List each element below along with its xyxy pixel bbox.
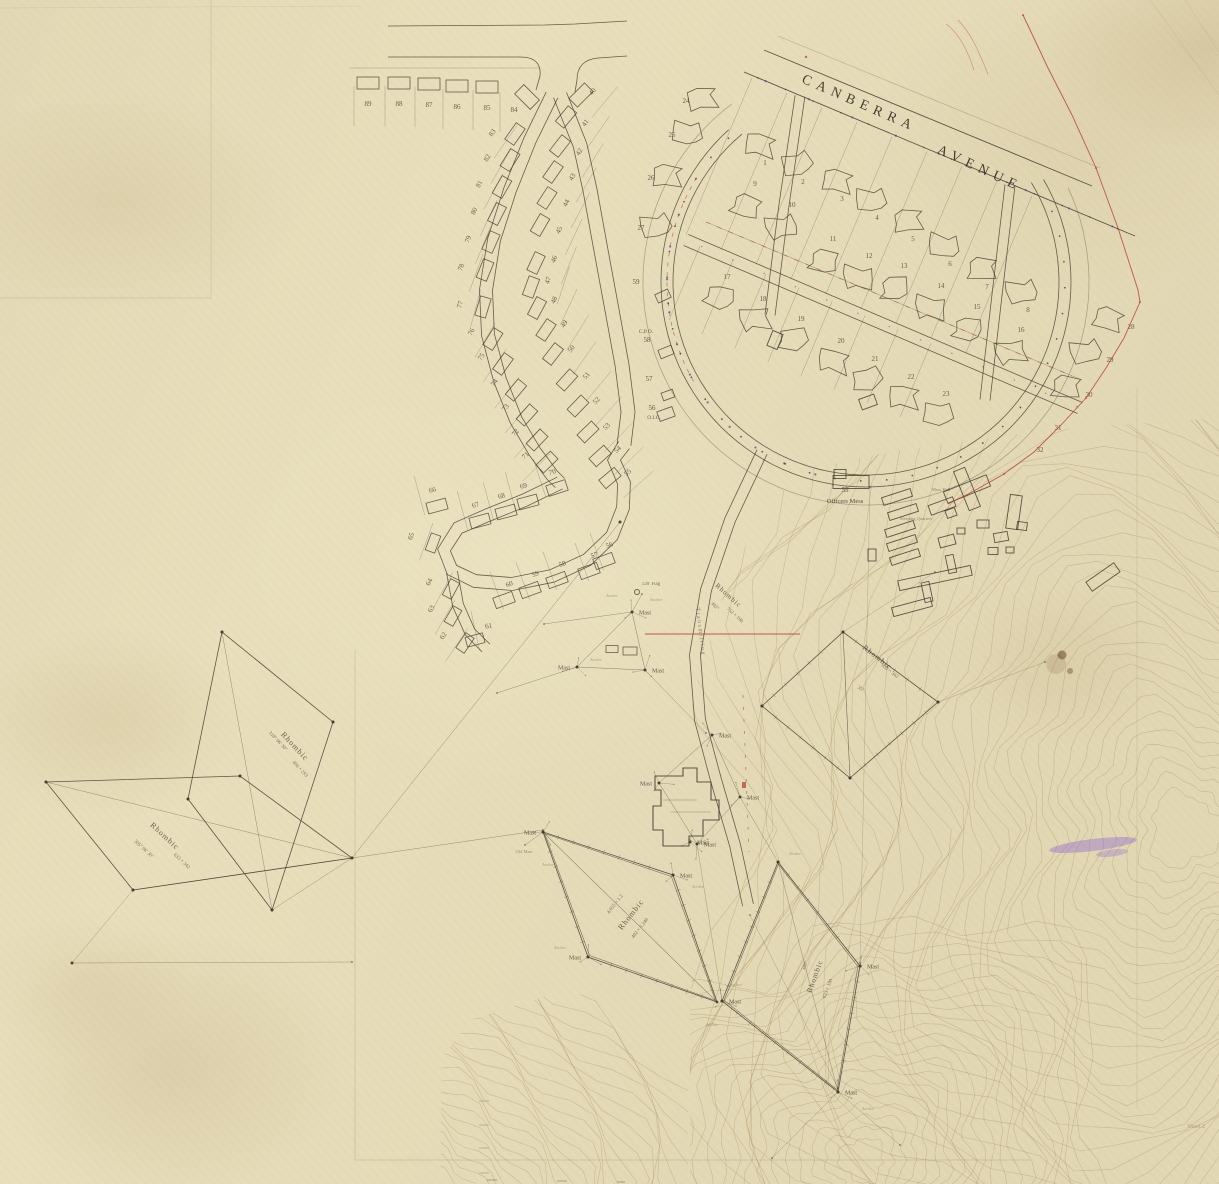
lot-number: 56 [605,540,615,550]
lot-number: 79 [463,234,473,244]
lot-boundary [457,491,467,530]
mast-label: Mast [640,782,652,788]
house-footprint [951,318,981,341]
contour-line [1007,621,1219,1028]
survey-dot [351,961,353,963]
road-dot [695,178,697,180]
mast-point [132,889,135,892]
contour-line [650,969,1047,1184]
lot-boundary [534,459,546,497]
lot-boundary [756,107,822,264]
house-footprint [475,296,491,318]
road-layer [350,21,1135,906]
survey-dot [830,1097,831,1098]
map-annotation: Mess Hall [932,487,951,492]
lot-number: 44 [561,198,572,208]
parcel-layer: 8988878685844041424344454647484950515253… [354,78,1135,661]
lot-number: 58 [558,559,568,569]
road-dot [674,225,676,227]
road-dot [672,328,674,330]
survey-line [645,670,706,733]
lot-number: 48 [549,295,559,305]
lot-number: 60 [505,579,515,589]
contour-line [824,372,1219,1184]
guy-line [671,863,673,875]
contour-line [274,1128,501,1184]
road-line [447,573,483,652]
building-layer [357,77,1124,655]
house-footprint [843,264,872,290]
house-footprint [493,353,514,376]
lot-number: 89 [365,100,373,108]
road-line [701,454,768,904]
house-footprint [1005,279,1037,304]
fold-lines [0,0,1219,1182]
survey-dot [673,784,674,785]
survey-dot [624,617,625,618]
street-name: AVENUE [935,143,1024,195]
map-annotation: Officers Mess [827,498,864,505]
survey-dot [716,1001,718,1003]
contour-line [871,464,1219,1184]
survey-dot [654,771,655,772]
house-footprint [526,429,548,451]
anchor-label: Anchor [589,657,603,662]
survey-line [860,487,870,963]
contour-line [193,1048,590,1184]
lot-boundary [470,289,480,328]
lot-number: 41 [580,117,591,128]
blue-post-dot [689,373,691,375]
survey-dot [705,732,707,734]
house-footprint [923,403,954,426]
road-dot [728,137,730,139]
lot-boundary [669,246,700,320]
house-footprint [702,287,733,310]
lot-number: 67 [471,500,480,510]
road-dot [911,475,913,477]
road-dot [868,123,870,125]
road-line [980,184,1005,399]
survey-dot [666,881,667,882]
road-dot [701,246,702,247]
lot-number: 54 [612,444,623,455]
lot-number: 16 [1018,326,1026,334]
lot-boundary [490,572,504,610]
survey-line [72,962,352,963]
red-mark [1003,473,1005,475]
lot-number: 47 [543,275,553,285]
red-mark [1085,397,1087,399]
lot-number: 68 [497,491,506,501]
survey-line [838,1092,900,1145]
survey-dot [681,845,682,846]
map-annotation: 55 [842,486,850,494]
map-annotation: Sleeping Quarters [900,516,933,521]
aerial-tick [835,936,839,939]
house-footprint [916,294,945,321]
road-dot [785,89,787,91]
lot-number: 6 [948,260,952,268]
anchor-label: Anchor [691,884,705,889]
road-dot [920,339,921,340]
survey-line [133,858,352,890]
road-dot [951,353,952,354]
contour-line [916,510,1219,1129]
house-footprint [880,277,907,299]
rhombic-outline [762,632,938,778]
house-footprint [543,161,563,184]
camp-building [928,497,956,515]
lot-boundary [469,254,483,292]
aerial-tick [736,1011,739,1015]
house-footprint [994,341,1028,366]
lot-boundary [801,302,832,376]
camp-building [1006,494,1023,529]
camp-building [957,528,965,534]
survey-line [659,735,712,783]
lot-boundary [702,260,733,334]
blue-post-dot [1111,225,1113,227]
mast-label: Mast [652,669,664,675]
house-footprint [764,214,797,240]
mast-point [849,777,852,780]
red-scribble [958,20,988,74]
red-arc-dashes [667,174,699,382]
blue-post-dot [707,401,709,403]
road-line [480,92,556,488]
road-dot [740,436,742,438]
house-footprint [357,77,379,89]
road-dot [1045,393,1046,394]
map-annotation: 58 [644,336,652,344]
camp-building [938,534,956,548]
lot-boundary [494,126,517,159]
house-footprint [522,276,539,299]
contour-line [75,933,714,1184]
ink-blot [1067,668,1073,674]
anchor-label: Anchor [729,982,743,987]
guy-line [731,797,740,805]
guy-line [631,600,632,612]
road-line [690,450,758,907]
lot-boundary [900,343,931,417]
survey-dot [869,486,871,488]
survey-dot [735,782,736,783]
road-dot [732,259,733,260]
lot-number: 83 [487,127,498,138]
lot-boundary [826,137,892,294]
survey-line [697,844,722,1001]
anchor-label: Anchor [541,862,555,867]
road-line [663,800,711,812]
lot-boundary [565,219,582,255]
lot-boundary [896,166,962,323]
contour-line [125,976,659,1184]
camp-building [889,549,920,566]
anchor-label: Anchor [605,593,619,598]
red-mark [805,56,807,58]
camp-building [993,531,1008,542]
road-line [764,50,1092,186]
lot-number: 51 [581,370,592,381]
contour-line [726,277,1219,1184]
lot-number: 7 [985,283,989,291]
survey-dot [861,956,862,957]
house-footprint [527,297,546,320]
lot-number: 76 [466,327,477,337]
aerial-tick [906,677,909,681]
road-dot [982,366,983,367]
contour-line [248,1102,531,1184]
house-footprint [658,345,674,359]
lot-number: 13 [901,262,909,270]
contour-line [686,244,1219,1184]
lot-number: 20 [838,337,846,345]
lot-number: 8 [1026,306,1030,314]
red-scribble [946,24,974,70]
mast-label: Mast [747,796,759,802]
map-annotation: 305° 06' 30" [133,839,155,860]
map-annotation: C.P.O. [639,329,654,335]
red-mark [1139,301,1141,303]
survey-dot [695,858,696,859]
mast-point [71,962,74,965]
guy-line [645,656,650,670]
map-annotation: Rhombic [148,820,181,851]
lot-number: 73 [500,402,511,413]
mast-label: Mast [845,1091,857,1097]
lot-number: 9 [753,180,757,188]
survey-dot [645,617,646,618]
road-dot [1034,193,1036,195]
survey-dot [670,862,671,863]
road-dot [1064,287,1066,289]
contour-line [111,964,671,1184]
rhombic-axis [778,862,838,1092]
road-dot [982,442,984,444]
road-dot [669,251,671,253]
mast-point [271,909,274,912]
house-footprint [567,395,589,417]
blue-post-dot [783,462,785,464]
rhombic-axis [46,782,352,858]
rhombic-outline [724,864,858,1090]
house-footprint [822,169,853,194]
map-annotation: O.I.C. [647,415,661,421]
lot-number: 72 [510,427,521,438]
camp-building [884,521,915,538]
aerial-tick [786,1051,789,1055]
survey-map-canvas: 8988878685844041424344454647484950515253… [0,0,1219,1184]
aerial-tick [854,639,857,643]
camp-building [943,475,990,503]
guy-line [720,989,722,1001]
lot-boundary [686,78,752,235]
road-dot [923,147,925,149]
lot-number: 46 [549,254,559,264]
lot-number: 70 [548,467,558,477]
lot-number: 65 [406,531,416,541]
blue-post-dot [814,473,816,475]
guy-line [633,670,645,672]
contour-line [74,921,719,1184]
road-dot [1063,261,1065,263]
survey-dot [578,657,579,658]
house-footprint [672,120,702,144]
house-footprint [729,194,762,219]
house-footprint [546,571,569,588]
lot-number: 42 [574,146,585,157]
lot-boundary [861,152,927,309]
survey-dot [549,821,550,822]
lot-number: 77 [455,300,465,309]
lot-number: 32 [1037,446,1045,454]
guy-line [577,667,585,675]
road-line [388,57,540,90]
road-dot [1117,228,1119,230]
red-boundary-line [948,15,1140,504]
contour-line [828,382,1219,1184]
mast-point [239,775,242,778]
house-footprint [543,343,564,366]
survey-line [577,667,645,670]
road-dot [683,201,685,203]
road-dot [761,451,763,453]
survey-dot [702,722,703,723]
road-dot [889,326,890,327]
contour-line [1064,678,1219,966]
house-footprint [778,328,809,351]
survey-layer [45,486,1047,1159]
survey-line [843,632,850,778]
lot-number: 52 [591,395,602,406]
contour-line [1084,711,1219,942]
lot-number: 81 [474,179,485,189]
lot-boundary [475,227,490,264]
survey-dot [837,1079,838,1080]
camp-building [977,520,989,528]
survey-line [632,594,642,612]
lot-number: 74 [489,377,500,388]
contour-line [264,1120,512,1184]
house-footprint [569,83,593,107]
house-footprint [446,80,468,92]
guy-line [543,822,549,832]
road-dot [1020,407,1022,409]
survey-dot [543,623,545,625]
map-annotation: Old Mast [516,849,534,854]
road-dot [1059,235,1061,237]
road-dot [1061,205,1063,207]
house-footprint [967,257,996,278]
street-name: CANBERRA [799,72,919,135]
contour-line [98,957,684,1184]
map-annotation: 120' Flag [642,582,661,587]
house-footprint [653,164,682,187]
road-dot [1035,385,1037,387]
house-footprint [739,309,772,332]
lot-number: 69 [519,481,528,491]
red-mark [1022,14,1024,16]
lot-number: 15 [974,303,982,311]
lot-number: 50 [566,343,577,354]
road-dot [757,77,759,79]
lot-boundary [575,543,589,581]
road-dot [886,479,888,481]
house-footprint [388,77,410,89]
contour-line [87,951,697,1184]
survey-dot [630,599,631,600]
house-footprint [469,513,491,529]
road-dot [826,299,827,300]
lot-number: 71 [520,450,531,461]
survey-dot [706,745,707,746]
aerial-tick [748,1021,751,1025]
lot-number: 88 [396,100,404,108]
contour-line [757,1069,954,1184]
road-dot [809,472,811,474]
survey-dot [771,1157,773,1159]
house-footprint [853,366,883,390]
contour-line [893,467,1219,1171]
house-footprint [493,591,516,608]
lot-boundary [516,562,530,600]
lot-boundary [445,628,467,661]
lot-number: 1 [763,159,767,167]
house-footprint [623,647,637,655]
rhombic-outline [46,776,352,890]
rhombic-outline [188,632,333,910]
road-dot [667,302,669,304]
blue-post-dot [1068,207,1070,209]
guy-line [645,670,651,676]
map-annotation: 342° [802,961,810,972]
lot-number: 59 [531,569,541,579]
house-footprint [515,85,540,110]
road-dot [1014,379,1015,380]
mast-point [937,701,940,704]
lot-number: 49 [559,318,570,329]
house-footprint [530,214,550,237]
map-annotation: Sheet 2 [1187,1124,1205,1130]
house-footprint [1069,339,1102,364]
road-line [567,92,636,445]
lot-number: 3 [840,195,844,203]
house-footprint [500,149,520,172]
survey-dot [588,944,589,945]
mast-label: Mast [680,874,692,880]
lot-boundary [475,323,495,358]
lot-number: 19 [798,315,806,323]
lot-boundary [561,247,576,284]
contour-line [837,1139,883,1184]
contour-line [708,1016,999,1184]
fold-line [1185,0,1219,52]
road-dot [1002,426,1004,428]
lot-number: 43 [567,172,578,182]
contour-line [945,554,1219,1106]
anchor-label: Anchor [788,851,802,856]
house-footprint [505,379,526,401]
contour-line [1038,654,1219,1001]
fold-line [0,6,360,8]
lot-number: 23 [943,390,951,398]
road-line [388,21,627,26]
survey-line [740,797,778,862]
contour-line [750,276,1219,1184]
blue-post-dot [754,446,756,448]
